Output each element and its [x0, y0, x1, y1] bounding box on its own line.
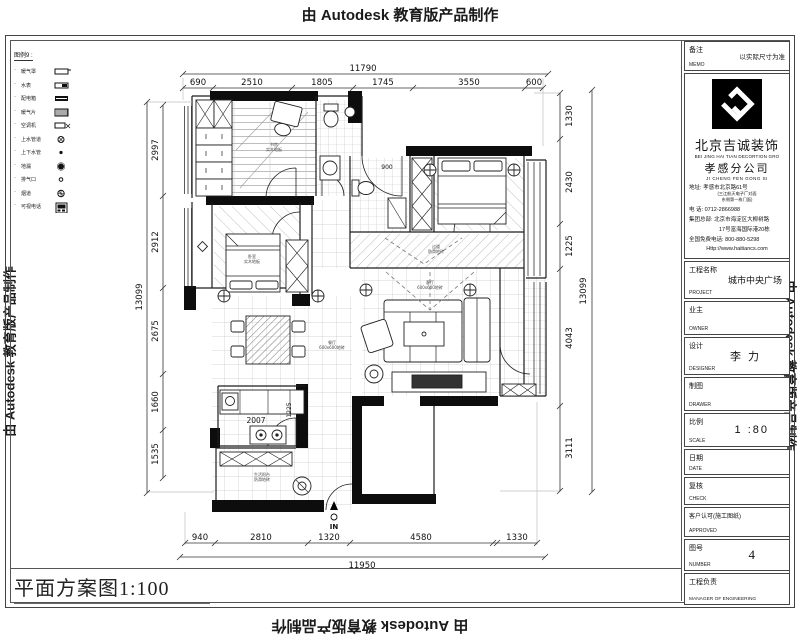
svg-text:4043: 4043: [565, 327, 575, 349]
hq-line1: 集团总部: 北京市海淀区大柳树路: [685, 215, 789, 223]
company-logo-icon: [712, 79, 762, 129]
date-cell: 日期 DATE: [684, 449, 790, 475]
dimension-right: [557, 87, 595, 495]
svg-text:600x600地砖: 600x600地砖: [319, 344, 345, 350]
designer-value: 李 力: [730, 348, 761, 364]
branch-name-en: JI CHENG FEN GONG SI: [685, 176, 789, 181]
dimension-top-labels: 11790 690 2510 1805 1745 3550 600: [190, 64, 542, 88]
study-wardrobe: [196, 100, 232, 196]
branch-name-cn: 孝感分公司: [685, 160, 789, 176]
master-bed: [438, 158, 506, 224]
kitchen-counter-dim: 2007: [246, 416, 265, 425]
svg-text:13099: 13099: [579, 277, 589, 304]
manager-cell: 工程负责 MANAGER OF ENGINEERING: [684, 573, 790, 605]
scale-cell: 比例 SCALE 1 :80: [684, 413, 790, 447]
svg-text:2912: 2912: [151, 231, 161, 253]
svg-text:1535: 1535: [151, 443, 161, 465]
svg-text:2675: 2675: [151, 320, 161, 342]
balcony-cabinet: [502, 384, 536, 396]
company-cell: 北京吉诚装饰 BEI JING HAI TIAN DECORTION GRO 孝…: [684, 73, 790, 259]
diamond-symbol: [198, 242, 208, 252]
owner-cell: 业主 OWNER: [684, 301, 790, 335]
floor-plan-drawing: IN 900 2007 1225 书房实木地板 卧室实木地板 过道防滑地砖 餐厅…: [0, 0, 800, 640]
svg-text:实木地板: 实木地板: [244, 258, 260, 264]
svg-text:防滑地砖: 防滑地砖: [428, 248, 444, 254]
svg-text:11950: 11950: [348, 561, 375, 571]
bedroom1-wardrobe: [286, 240, 308, 292]
number-value: 4: [749, 547, 756, 563]
svg-text:实木地板: 实木地板: [266, 146, 282, 152]
phone-line: 电 话: 0712-2866988: [685, 205, 789, 213]
check-cell: 复核 CHECK: [684, 477, 790, 505]
svg-text:2810: 2810: [250, 533, 272, 543]
designer-cell: 设计 DESIGNER 李 力: [684, 337, 790, 375]
svg-text:940: 940: [192, 533, 208, 543]
svg-text:4580: 4580: [410, 533, 432, 543]
memo-value: 以实际尺寸为准: [740, 51, 786, 61]
dimension-left-labels: 2997 2912 2675 1660 1535 13099: [135, 139, 161, 465]
dimension-bottom-labels: 940 2810 1320 4580 1330 11950: [192, 533, 528, 571]
hotline-line: 全国免费电话: 800-880-5298: [685, 235, 789, 243]
hq-line2: 17号富海国际港20栋: [685, 225, 789, 233]
dimension-bottom: [177, 540, 548, 560]
svg-text:600: 600: [526, 78, 542, 88]
entry-label: IN: [330, 523, 339, 531]
svg-text:3111: 3111: [565, 437, 575, 459]
memo-cell: 备注 MEMO 以实际尺寸为准: [684, 41, 790, 71]
svg-text:1330: 1330: [506, 533, 528, 543]
company-name-en: BEI JING HAI TIAN DECORTION GRO: [685, 154, 789, 159]
svg-text:1660: 1660: [151, 391, 161, 413]
svg-text:2510: 2510: [241, 78, 263, 88]
dimension-top: [180, 71, 551, 91]
svg-text:1225: 1225: [565, 235, 575, 257]
svg-text:690: 690: [190, 78, 206, 88]
svg-text:2997: 2997: [151, 139, 161, 161]
address-note2: 东侧第一栋门面): [685, 197, 789, 203]
project-value: 城市中央广场: [728, 274, 782, 287]
title-block: 备注 MEMO 以实际尺寸为准 北京吉诚装饰 BEI JING HAI TIAN…: [684, 41, 790, 600]
drawer-cell: 制图 DRAWER: [684, 377, 790, 411]
svg-text:600x600地砖: 600x600地砖: [417, 284, 443, 290]
address-line: 地址: 孝感市北京路61号: [685, 183, 789, 191]
door-dim-label: 900: [381, 164, 393, 171]
kitchen-depth-dim: 1225: [286, 402, 293, 417]
svg-text:11790: 11790: [349, 64, 376, 74]
svg-text:3550: 3550: [458, 78, 480, 88]
company-name-cn: 北京吉诚装饰: [685, 135, 789, 154]
svg-text:1745: 1745: [372, 78, 394, 88]
svg-text:13099: 13099: [135, 283, 145, 310]
svg-text:防滑地砖: 防滑地砖: [254, 476, 270, 482]
svg-text:2430: 2430: [565, 171, 575, 193]
svg-text:1320: 1320: [318, 533, 340, 543]
svg-text:1805: 1805: [311, 78, 333, 88]
scale-value: 1 :80: [735, 424, 769, 436]
project-cell: 工程名称 PROJECT 城市中央广场: [684, 261, 790, 299]
number-cell: 图号 NUMBER 4: [684, 539, 790, 571]
approved-cell: 客户认可(施工图纸) APPROVED: [684, 507, 790, 537]
dimension-right-labels: 1330 2430 1225 4043 3111 13099: [565, 105, 589, 459]
svg-text:1330: 1330: [565, 105, 575, 127]
company-website: Http://www.haitiancs.com: [685, 246, 789, 252]
